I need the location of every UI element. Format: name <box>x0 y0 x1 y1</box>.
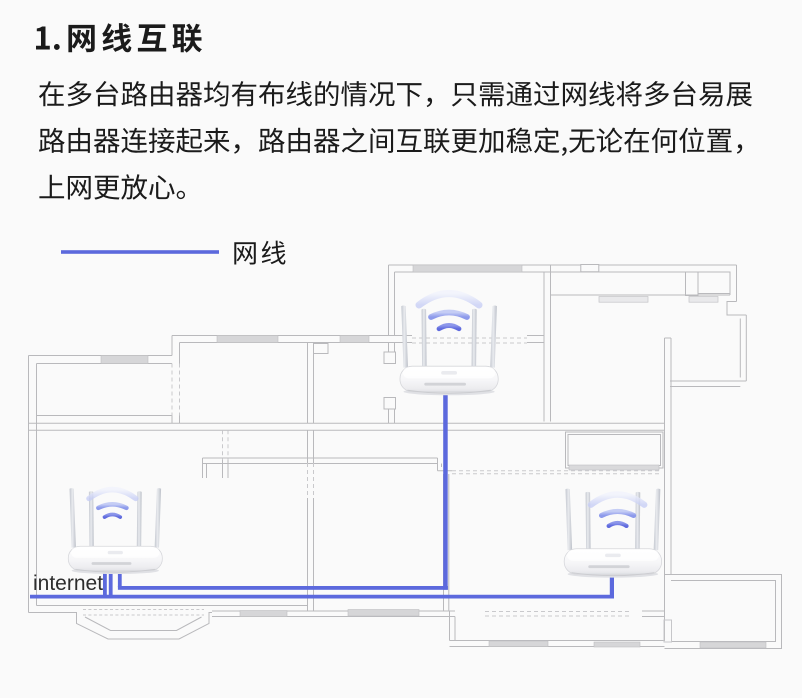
svg-text:internet: internet <box>33 572 103 595</box>
